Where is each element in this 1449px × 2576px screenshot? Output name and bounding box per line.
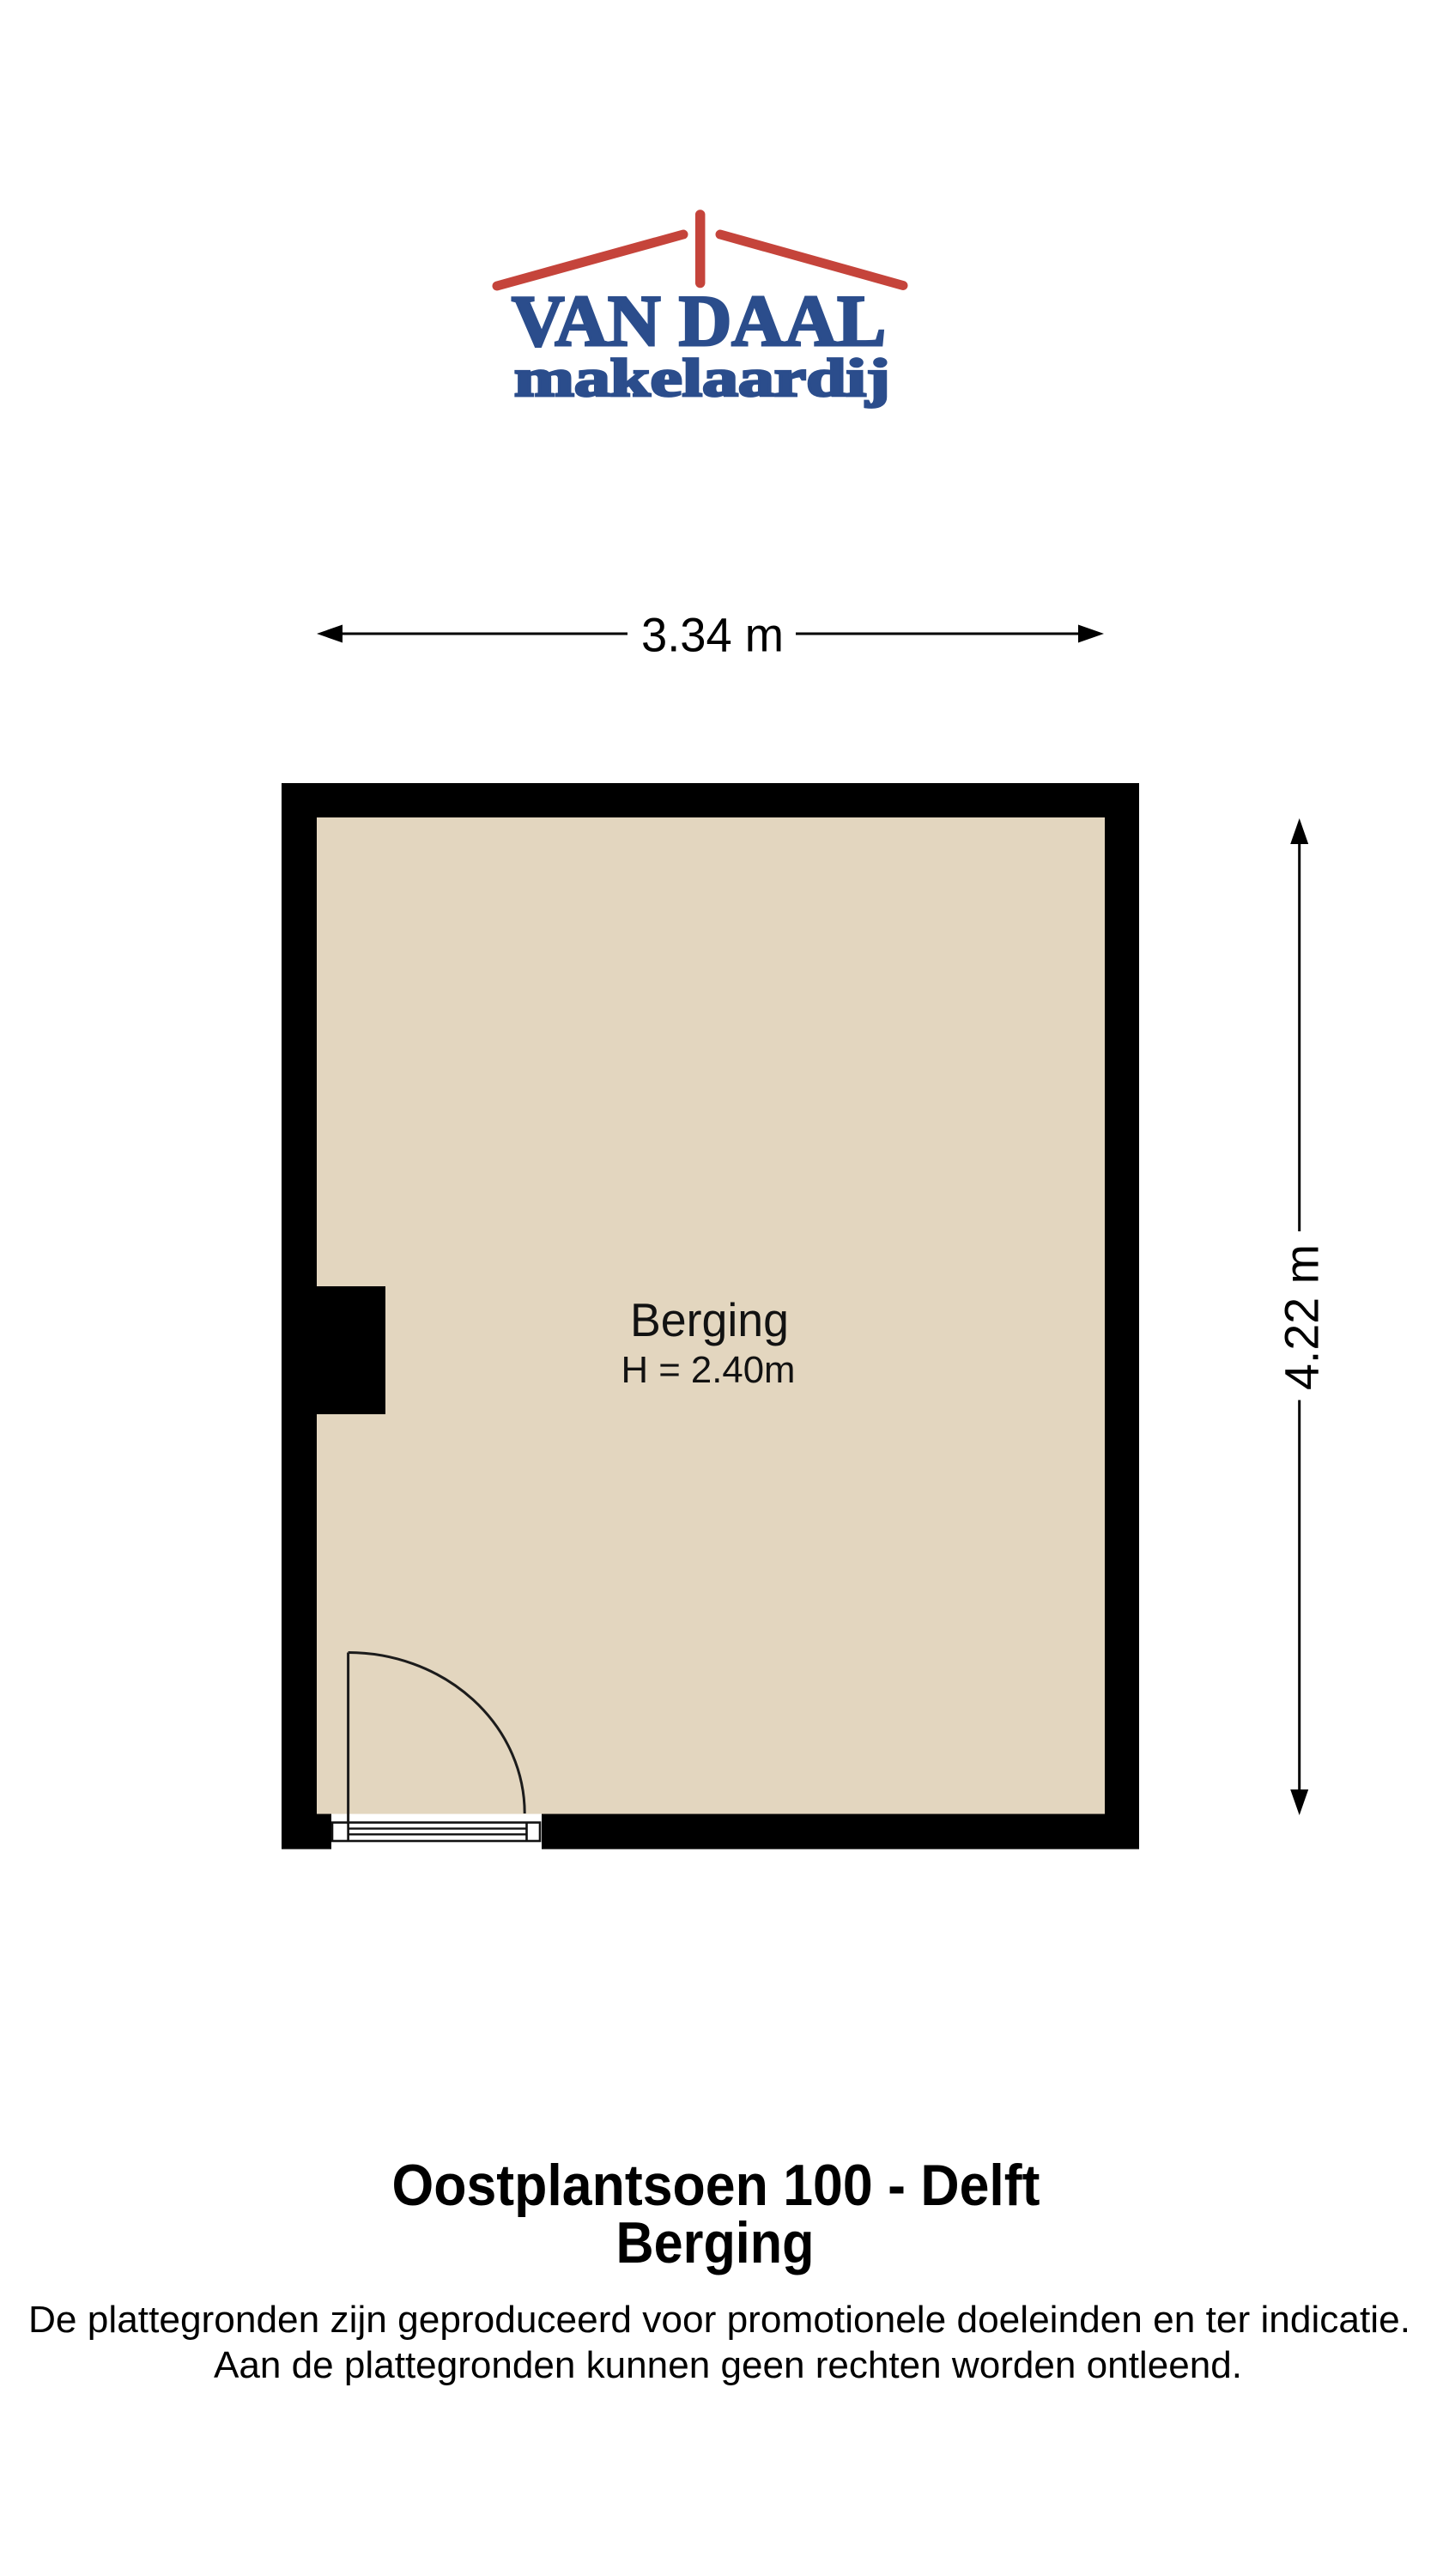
svg-text:makelaardij: makelaardij <box>514 349 890 408</box>
svg-text:H = 2.40m: H = 2.40m <box>621 1349 796 1391</box>
svg-text:3.34 m: 3.34 m <box>641 608 784 662</box>
svg-text:De plattegronden zijn geproduc: De plattegronden zijn geproduceerd voor … <box>28 2299 1410 2341</box>
svg-text:Oostplantsoen 100 - Delft: Oostplantsoen 100 - Delft <box>392 2153 1040 2218</box>
svg-text:Aan de plattegronden kunnen ge: Aan de plattegronden kunnen geen rechten… <box>214 2344 1242 2386</box>
svg-text:Berging: Berging <box>630 1293 789 1346</box>
svg-text:Berging: Berging <box>616 2210 815 2275</box>
svg-text:4.22 m: 4.22 m <box>1275 1244 1329 1390</box>
